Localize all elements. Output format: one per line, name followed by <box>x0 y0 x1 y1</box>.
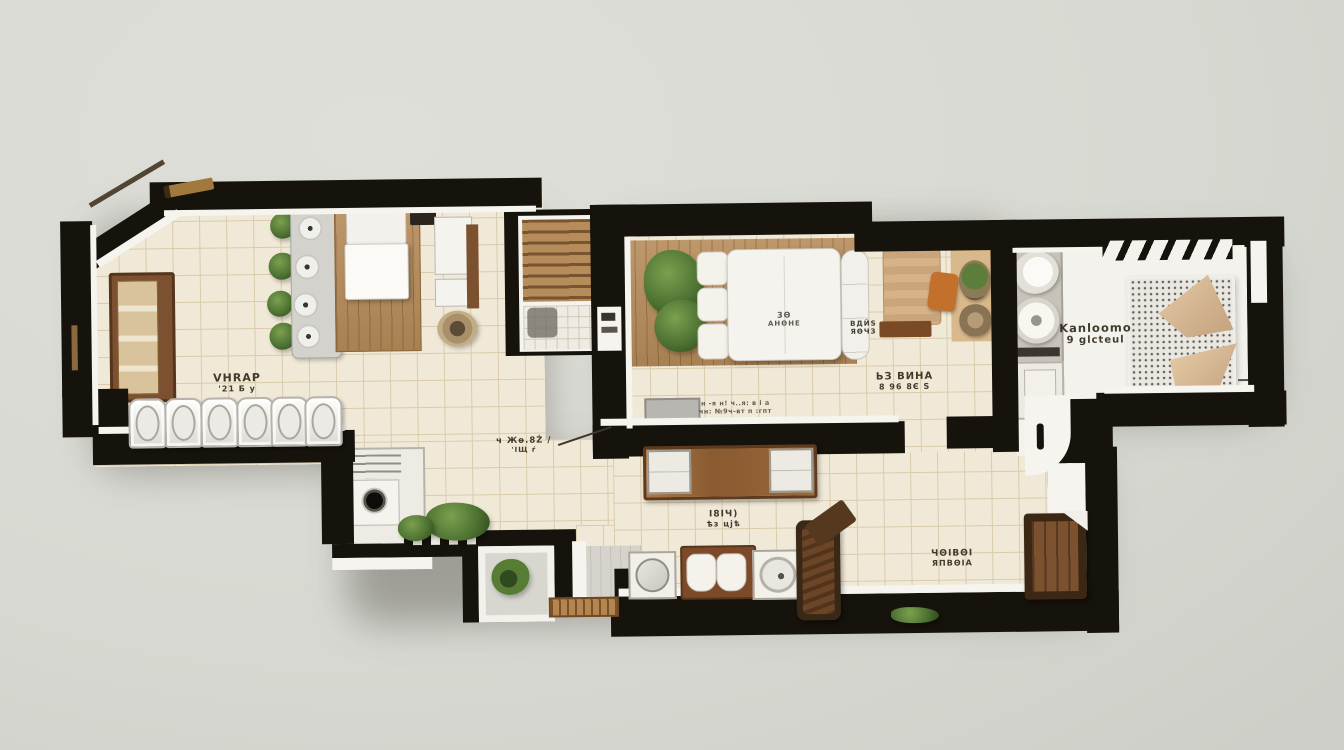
mattress-seam <box>784 256 786 354</box>
floorplan-rendering: VHRAP '21 Б у ч Жѳ.8Ż / 'ІЩ ŕ 3Θ АНΘНЕ В… <box>0 0 1344 750</box>
door-jamb-bar <box>116 399 122 419</box>
label-line: '21 Б у <box>180 384 294 394</box>
sofa-arm-cushions <box>840 250 869 360</box>
label-line: ѣз цјѣ <box>692 519 756 529</box>
label-master-note: н -я н! ч..я: в і а чн: №9ч-вт п :гпт <box>640 398 830 416</box>
drum <box>759 556 796 592</box>
hedge-plant <box>426 502 490 541</box>
wall-hedge-ledge <box>332 543 464 559</box>
wall-hall-step <box>321 460 354 544</box>
label-line: ЯѲЧЗ <box>835 327 891 336</box>
entry-threshold <box>549 597 619 618</box>
cabinet-panel <box>1032 521 1079 592</box>
bed-mattress <box>344 243 409 300</box>
trim-courtyard-right <box>572 541 587 599</box>
trim-hedge-ledge <box>332 557 432 570</box>
dark-cabinet <box>1024 513 1087 600</box>
entry-door-brass <box>71 325 78 370</box>
label-line: АНΘНЕ <box>749 319 819 328</box>
orange-cushion <box>927 271 960 312</box>
chair-seat <box>135 405 159 441</box>
sofa-side-cushion <box>697 287 729 321</box>
bench-cushion <box>686 553 716 591</box>
label-sofa-bed: 3Θ АНΘНЕ <box>749 310 819 328</box>
round-cushion <box>295 254 320 279</box>
courtyard-planter <box>478 545 555 622</box>
washing-machine <box>628 551 677 600</box>
sofa-bed-mattress <box>726 248 841 361</box>
label-line: 'ІЩ ŕ <box>469 445 579 454</box>
dining-chair <box>128 398 167 448</box>
counter-slot <box>1016 347 1060 357</box>
chair-seat <box>171 405 195 441</box>
chair-seat <box>243 404 267 440</box>
wardrobe-daybed <box>109 272 177 403</box>
label-master-small: ВДЙЅ ЯѲЧЗ <box>835 319 891 336</box>
curve-slot <box>1037 423 1044 449</box>
round-cushion <box>298 216 322 240</box>
wall-master-top <box>590 202 872 237</box>
dining-chair <box>270 396 309 446</box>
round-cushion <box>293 292 318 317</box>
label-living-room: VHRAP '21 Б у <box>180 371 294 394</box>
plant-sprig <box>891 607 939 624</box>
chair-seat <box>311 403 335 439</box>
label-master-bedroom: ЬЗ ВИНА 8 96 8Є Ѕ <box>862 371 947 392</box>
washroom-appliance <box>527 307 557 337</box>
round-cushion <box>296 324 320 348</box>
dining-chair <box>304 396 343 446</box>
bed-pillows <box>346 209 406 246</box>
label-line: ЯПВΘΙА <box>916 558 988 568</box>
label-line: Kanloomo <box>1043 320 1147 335</box>
dining-chair <box>236 397 275 447</box>
hatch-window-strip <box>1102 239 1232 261</box>
stove-burner <box>361 487 387 513</box>
washer-drum-sketch <box>635 558 669 592</box>
chair-seat <box>207 404 231 440</box>
window-marks <box>601 313 615 321</box>
table-seat-cushion <box>769 448 814 493</box>
label-bottom-right-room: ЧΘΙΒΘΙ ЯПВΘΙА <box>916 548 988 568</box>
table-seat-cushion <box>647 450 692 495</box>
floorplan-scene: VHRAP '21 Б у ч Жѳ.8Ż / 'ІЩ ŕ 3Θ АНΘНЕ В… <box>0 0 1344 750</box>
window-marks <box>601 327 617 333</box>
sofa-side-cushion <box>697 323 729 359</box>
dining-chair <box>200 397 239 447</box>
wall-living-left <box>60 221 94 397</box>
label-hall: ч Жѳ.8Ż / 'ІЩ ŕ <box>469 435 579 454</box>
white-column <box>1250 241 1267 303</box>
label-dining: І8ІЧ) ѣз цјѣ <box>692 509 756 529</box>
label-right-bedroom: Kanloomo 9 glcteul <box>1043 320 1147 346</box>
chair-seat <box>277 404 301 440</box>
dining-chair <box>164 398 203 448</box>
label-line: 8 96 8Є Ѕ <box>862 382 947 392</box>
round-pouf <box>959 304 991 336</box>
courtyard-plant <box>491 559 529 595</box>
sofa-side-cushion <box>696 251 728 285</box>
wall-right-wing-bottom <box>1096 390 1286 426</box>
bench-cushion <box>716 553 746 591</box>
door-jamb-bar <box>100 395 107 419</box>
wardrobe-cushions <box>117 280 159 394</box>
plant-basket-pouf <box>959 260 991 300</box>
label-line: 9 glcteul <box>1044 334 1148 346</box>
window-cell <box>597 307 622 351</box>
wall-master-bottom-stub <box>947 416 1017 449</box>
wood-slat <box>466 224 479 308</box>
